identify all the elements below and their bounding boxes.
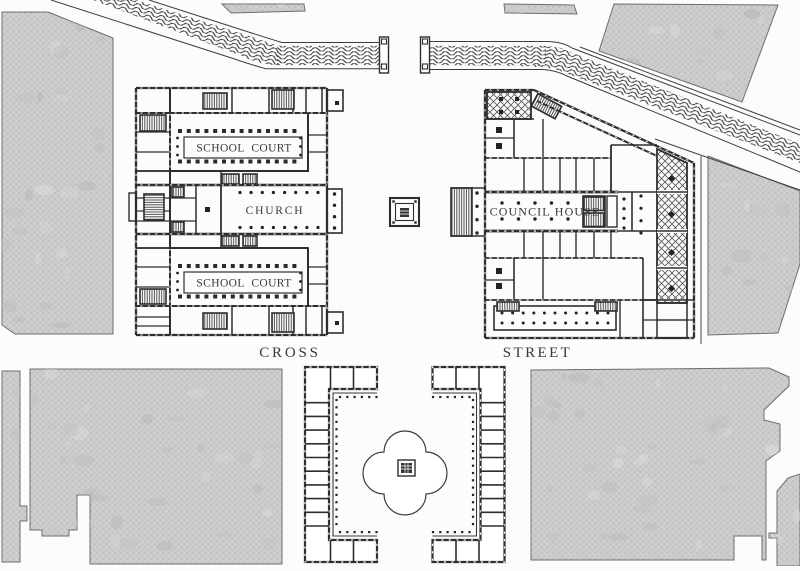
svg-text:SCHOOL COURT: SCHOOL COURT — [196, 143, 291, 155]
svg-text:CHURCH: CHURCH — [246, 205, 305, 217]
svg-text:CROSS: CROSS — [259, 345, 321, 361]
svg-text:COUNCIL HOUSE: COUNCIL HOUSE — [490, 205, 601, 219]
svg-text:STREET: STREET — [503, 345, 572, 361]
svg-text:SCHOOL COURT: SCHOOL COURT — [196, 278, 291, 290]
